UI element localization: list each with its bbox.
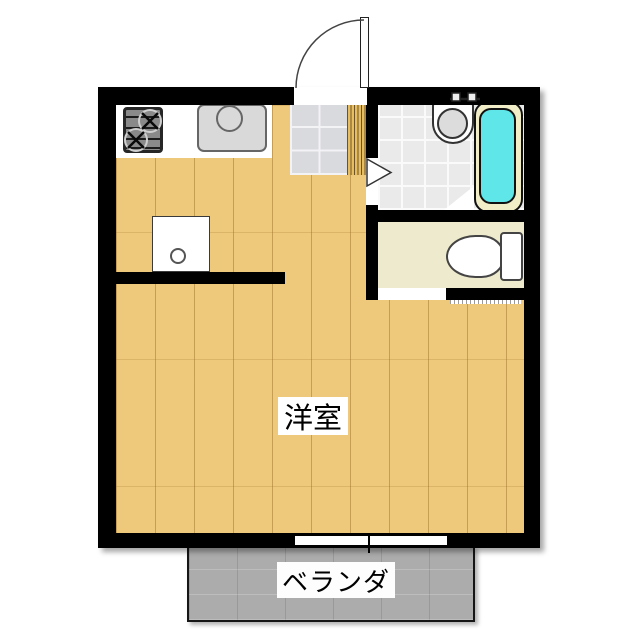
entry-door-arc-icon xyxy=(296,20,364,88)
main-room-label-text: 洋室 xyxy=(284,395,342,437)
balcony-area: ベランダ xyxy=(187,546,475,622)
balcony-label: ベランダ xyxy=(277,562,395,598)
balcony-window-divider xyxy=(368,536,370,553)
main-room-label: 洋室 xyxy=(278,397,348,435)
balcony-label-text: ベランダ xyxy=(282,562,390,599)
balcony-window xyxy=(295,536,447,545)
outer-walls xyxy=(98,87,540,548)
floorplan-canvas: ベランダ xyxy=(0,0,640,640)
entry-doorway xyxy=(294,87,367,105)
entry-door-leaf-icon xyxy=(360,17,369,88)
